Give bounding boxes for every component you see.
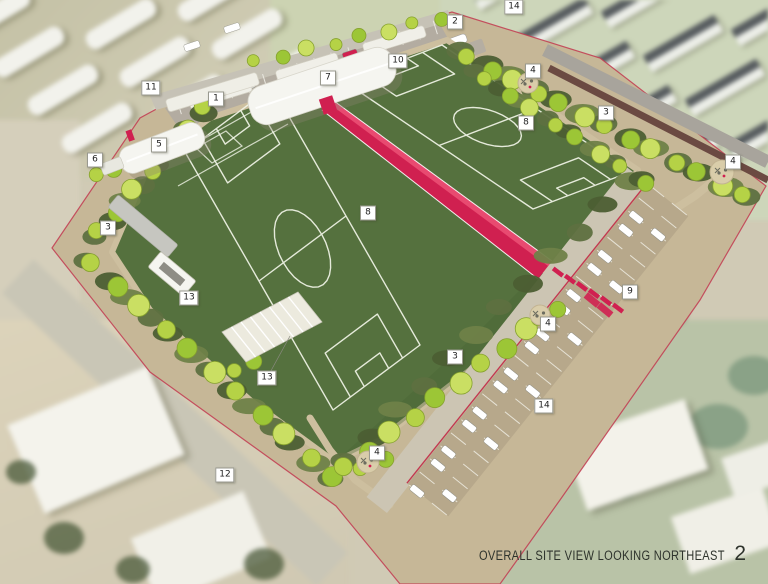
sheet-number: 2: [734, 542, 746, 566]
tree: [108, 277, 128, 297]
site-rendering-board: 11171021443456388941313314124 OVERALL SI…: [0, 0, 768, 584]
tree: [122, 179, 142, 199]
tree: [88, 223, 104, 239]
tree: [575, 107, 595, 127]
tree: [276, 50, 290, 64]
plaza: [357, 451, 379, 473]
tree: [406, 409, 424, 427]
plaza-red-accent: [541, 318, 544, 321]
tree: [378, 421, 400, 443]
tree: [502, 88, 518, 104]
tree: [253, 405, 273, 425]
tree: [596, 118, 612, 134]
tree: [567, 129, 583, 145]
plaza-furniture: [530, 79, 533, 82]
tree: [352, 28, 366, 42]
tree: [734, 187, 750, 203]
site-aerial-rendering: [0, 0, 768, 584]
tree: [128, 294, 150, 316]
tree: [477, 72, 491, 86]
plaza-red-accent: [369, 465, 372, 468]
tree: [687, 163, 705, 181]
plaza-red-accent: [723, 175, 726, 178]
tree: [303, 449, 321, 467]
tree: [520, 99, 538, 117]
tree: [592, 145, 610, 163]
tree: [226, 382, 244, 400]
plaza: [710, 160, 734, 184]
tree: [549, 94, 567, 112]
tree: [638, 175, 654, 191]
tree: [425, 388, 445, 408]
tree: [613, 159, 627, 173]
caption-text: OVERALL SITE VIEW LOOKING NORTHEAST: [479, 548, 725, 563]
tree: [247, 55, 259, 67]
tree: [435, 12, 449, 26]
parked-car: [223, 22, 240, 34]
plaza: [518, 73, 538, 93]
plaza-red-accent: [529, 86, 532, 89]
tree: [497, 339, 517, 359]
tree: [204, 361, 226, 383]
tree: [550, 301, 566, 317]
tree: [89, 168, 103, 182]
view-caption: OVERALL SITE VIEW LOOKING NORTHEAST 2: [425, 542, 746, 566]
tree: [273, 423, 295, 445]
tree: [622, 131, 640, 149]
plaza-furniture: [542, 311, 545, 314]
shrub-mass: [432, 350, 462, 366]
tree: [177, 338, 197, 358]
parked-car: [183, 40, 200, 52]
tree: [406, 17, 418, 29]
tree: [458, 49, 474, 65]
tree: [378, 451, 394, 467]
shrub-mass: [567, 223, 593, 241]
shrub-mass: [513, 275, 543, 293]
shrub-mass: [587, 196, 617, 212]
tree: [472, 354, 490, 372]
shrub-mass: [486, 299, 512, 315]
tree: [640, 139, 660, 159]
tree: [334, 458, 352, 476]
tree: [157, 321, 175, 339]
plaza-furniture: [370, 458, 373, 461]
tree: [227, 364, 241, 378]
tree: [548, 118, 562, 132]
plaza: [530, 305, 550, 325]
shrub-mass: [534, 248, 568, 264]
tree: [381, 24, 397, 40]
tree: [298, 40, 314, 56]
plaza-furniture: [724, 168, 727, 171]
tree: [81, 254, 99, 272]
tree: [330, 39, 342, 51]
tree: [450, 372, 472, 394]
tree: [669, 155, 685, 171]
shrub-mass: [459, 326, 493, 344]
